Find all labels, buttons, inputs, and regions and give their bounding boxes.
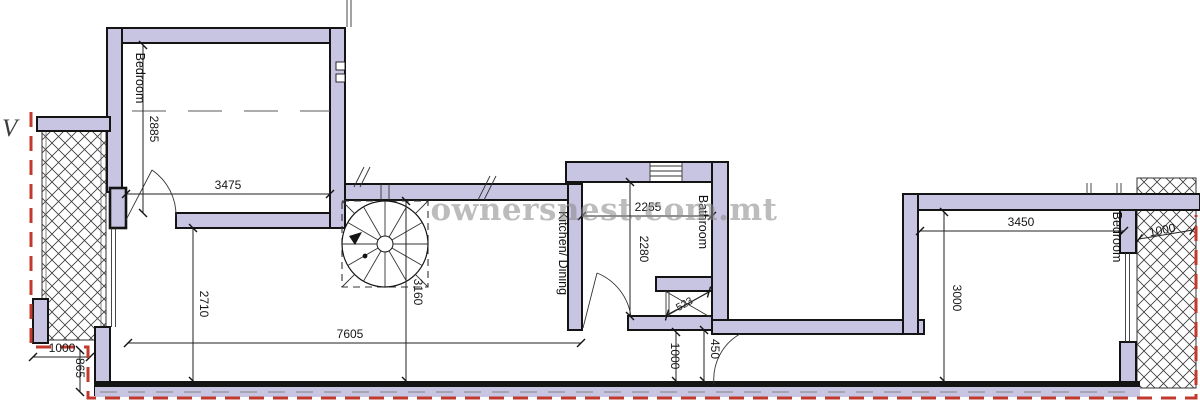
wall-bedroom-left-top	[107, 28, 345, 43]
dimension-3160: 3160	[411, 279, 425, 306]
dimension-1000-hall: 1000	[668, 343, 682, 370]
wall-bedroom-right-top	[903, 194, 1200, 210]
wall-bathroom-right	[712, 162, 728, 334]
wall-bedroom-right-left	[903, 194, 918, 334]
dimension-3000: 3000	[950, 285, 964, 312]
dimension-1000-left: 1000	[49, 341, 76, 355]
wall-door-pillar	[110, 188, 126, 228]
room-label-bedroom-right: Bedroom	[1110, 212, 1124, 263]
wall-hallway	[712, 320, 924, 334]
wall-bathroom-top	[566, 162, 728, 182]
wall-bedroom-left-bottom	[176, 213, 330, 228]
wall-boundary-stub	[33, 299, 48, 343]
dimension-7605: 7605	[337, 327, 364, 341]
dimension-3475: 3475	[215, 178, 242, 192]
wall-bedroom-left-right	[330, 28, 345, 228]
window-bathroom-top	[650, 163, 682, 181]
wall-bottom-black	[95, 381, 1140, 387]
wall-notch-lower	[336, 74, 345, 82]
wall-shaft-top	[656, 277, 712, 291]
dimension-2280: 2280	[637, 236, 651, 263]
room-label-bedroom-left: Bedroom	[133, 53, 147, 104]
dimension-865: 865	[73, 358, 87, 378]
wall-bedroom-left-left	[107, 28, 122, 192]
wall-terrace-top-bar	[37, 117, 110, 131]
dimension-2710: 2710	[197, 291, 211, 318]
floor-plan-drawing: 2885 3475 2710 7605 3160 2255 2280 523 4…	[0, 0, 1200, 417]
dimension-3450: 3450	[1008, 215, 1035, 229]
terrace-hatch-left	[42, 131, 106, 340]
watermark: ownersnest.com.mt	[430, 192, 777, 228]
wall-notch-upper	[336, 62, 345, 70]
wall-bathroom-bottom	[628, 316, 712, 330]
dimension-2885: 2885	[147, 116, 161, 143]
dimension-450: 450	[708, 339, 722, 359]
floor-plan: 2885 3475 2710 7605 3160 2255 2280 523 4…	[0, 0, 1200, 417]
